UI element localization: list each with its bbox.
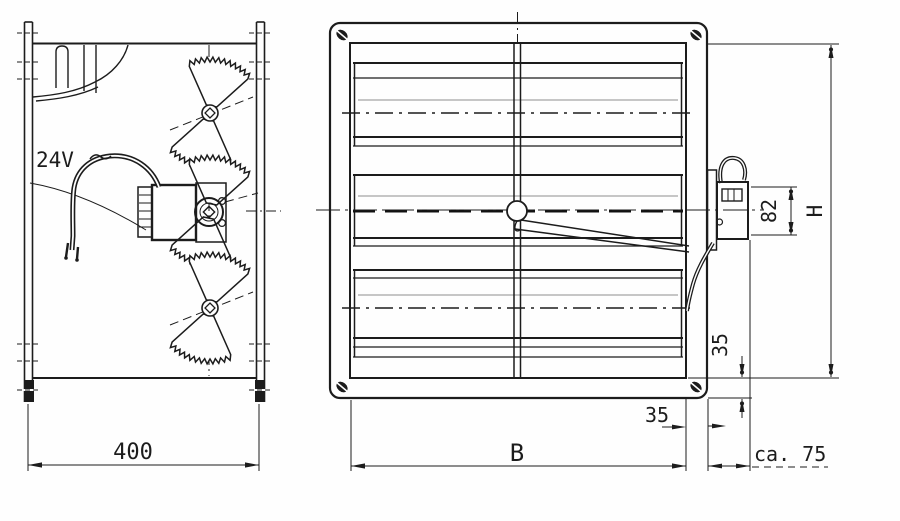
dim-82-text: 82 — [757, 199, 781, 223]
dim-35-horizontal: 35 — [645, 403, 726, 429]
dim-ca75: ca. 75 — [708, 442, 828, 468]
dim-B-text: B — [510, 439, 524, 467]
dim-35v-text: 35 — [708, 333, 732, 357]
dim-35-vertical: 35 — [708, 333, 745, 418]
dim-H: H — [803, 45, 834, 377]
dim-82: 82 — [757, 187, 794, 235]
center-hub — [507, 201, 527, 221]
technical-drawing-page: 24V 400 — [0, 0, 900, 521]
sheet-metal-detail — [33, 45, 128, 101]
dim-400: 400 — [28, 404, 259, 471]
motor-screw-bottom — [219, 220, 226, 227]
dim-B: B — [351, 439, 686, 469]
front-view: H 82 35 35 — [316, 12, 839, 471]
sector-gear-middle — [170, 155, 249, 267]
dim-400-text: 400 — [113, 440, 153, 465]
side-view: 24V 400 — [17, 22, 281, 471]
dim-ca75-text: ca. 75 — [754, 442, 826, 466]
motor-cable — [687, 243, 713, 311]
pivot-centerlines — [316, 12, 764, 308]
louver-damper-drawing: 24V 400 — [0, 0, 900, 521]
extension-lines — [351, 44, 839, 471]
actuator-motor-front — [687, 158, 748, 311]
motor-window — [722, 189, 742, 201]
voltage-label: 24V — [36, 148, 74, 172]
dim-H-text: H — [803, 205, 827, 218]
dim-35h-text: 35 — [645, 403, 669, 427]
